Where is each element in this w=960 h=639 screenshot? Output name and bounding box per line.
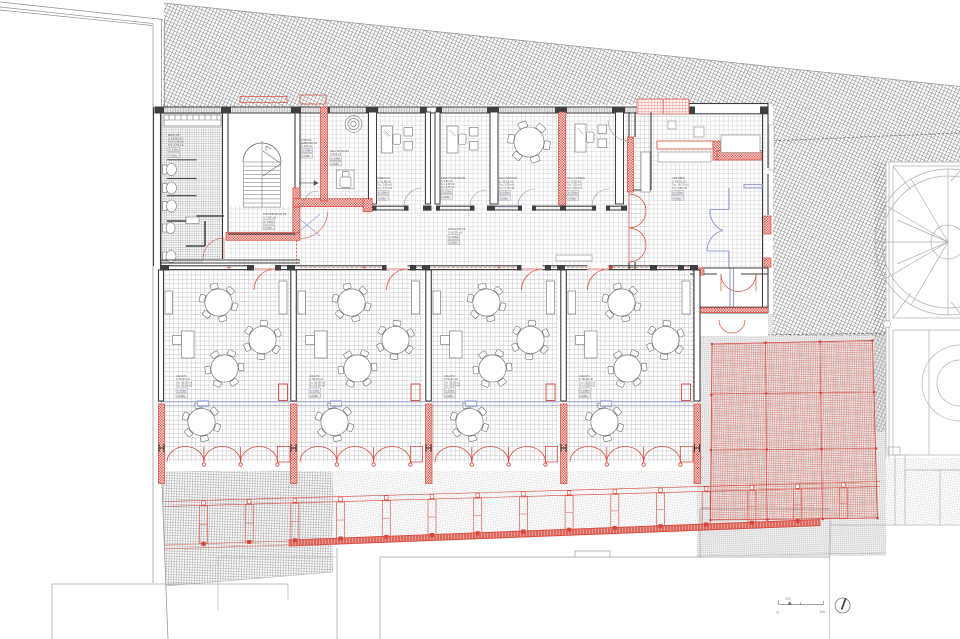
svg-text:+3,06m: +3,06m	[445, 395, 453, 398]
svg-text:h: 3,96m: h: 3,96m	[580, 389, 589, 392]
svg-text:h: 3,96m: h: 3,96m	[331, 157, 340, 160]
svg-text:+3,06m: +3,06m	[264, 227, 272, 230]
svg-text:+3,06m: +3,06m	[378, 197, 386, 200]
svg-text:+3,06m: +3,06m	[331, 163, 339, 166]
svg-text:h: 3,96m: h: 3,96m	[310, 389, 319, 392]
svg-text:h: 3,96m: h: 3,96m	[442, 191, 451, 194]
svg-text:+3,06m: +3,06m	[580, 395, 588, 398]
svg-text:S.v: 3,70 m2: S.v: 3,70 m2	[499, 186, 515, 190]
svg-text:+3,06m: +3,06m	[310, 395, 318, 398]
svg-text:h: 3,96m: h: 3,96m	[673, 192, 682, 195]
svg-text:+3,06m: +3,06m	[169, 154, 177, 157]
svg-text:S.v: 2,30 m2: S.v: 2,30 m2	[567, 186, 583, 190]
svg-text:+3,06m: +3,06m	[568, 197, 576, 200]
svg-text:S.v: 2,45 m2: S.v: 2,45 m2	[441, 186, 455, 189]
svg-text:0.5: 0.5	[786, 597, 791, 601]
svg-text:S: 3,08 m2: S: 3,08 m2	[301, 145, 313, 148]
svg-text:+3,06m: +3,06m	[673, 197, 681, 200]
svg-text:h: 3,96m: h: 3,96m	[169, 149, 178, 152]
svg-text:S.v: 12,30 m2: S.v: 12,30 m2	[444, 384, 461, 388]
svg-text:S.v: 12,30 m2: S.v: 12,30 m2	[176, 384, 193, 388]
svg-text:h: 3,96m: h: 3,96m	[500, 192, 509, 195]
svg-text:S: 5,60 m2: S: 5,60 m2	[330, 154, 342, 156]
svg-text:+3,06m: +3,06m	[500, 197, 508, 200]
svg-text:+3,06m: +3,06m	[302, 155, 310, 158]
svg-text:h: 3,96m: h: 3,96m	[378, 192, 387, 195]
svg-text:+3,06m: +3,06m	[177, 395, 185, 398]
svg-text:+3,06m: +3,06m	[442, 196, 450, 199]
svg-text:S.v: 3,75 m2: S.v: 3,75 m2	[377, 186, 393, 190]
svg-text:h: 3,96m: h: 3,96m	[264, 221, 273, 224]
svg-text:h: 3,96m: h: 3,96m	[445, 389, 454, 392]
svg-text:+3,06m: +3,06m	[449, 242, 457, 245]
svg-text:SALA TAQUILLES: SALA TAQUILLES	[330, 150, 349, 153]
svg-text:S.v: 12,30 m2: S.v: 12,30 m2	[309, 384, 326, 388]
svg-text:S.v: 12,30 m2: S.v: 12,30 m2	[579, 384, 596, 388]
svg-text:S.V: 1,70 m2: S.V: 1,70 m2	[168, 143, 184, 147]
svg-text:h: 3,96m: h: 3,96m	[568, 192, 577, 195]
svg-text:h: 3,96m: h: 3,96m	[302, 150, 311, 153]
svg-text:S.v: 5,95 m2: S.v: 5,95 m2	[672, 186, 688, 190]
svg-text:h: 3,96m: h: 3,96m	[177, 389, 186, 392]
svg-text:S: 41,70 m2: S: 41,70 m2	[448, 230, 463, 234]
svg-text:0: 0	[777, 611, 779, 615]
svg-text:h: 3,96m: h: 3,96m	[449, 236, 458, 239]
svg-text:2m: 2m	[820, 610, 825, 614]
svg-text:S: 7,94 m2: S: 7,94 m2	[263, 215, 277, 219]
